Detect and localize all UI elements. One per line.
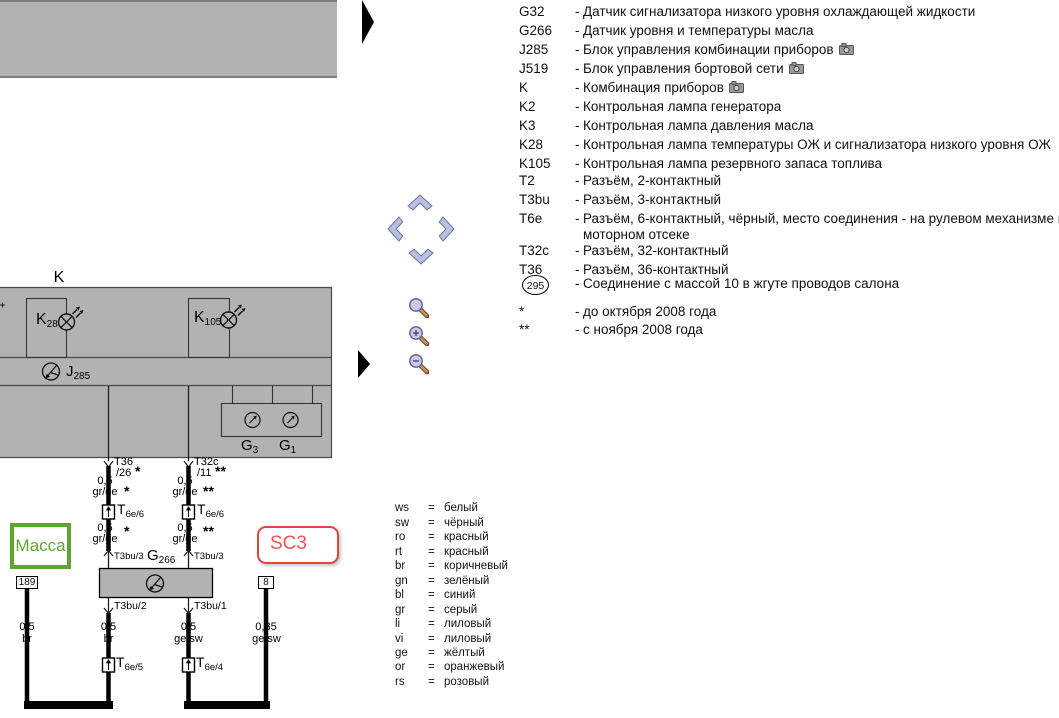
massa-link-box[interactable]: Масса <box>10 523 71 569</box>
label-g3: G3 <box>241 437 258 456</box>
label-star: * <box>124 523 129 539</box>
connector-icon-t6e4 <box>183 658 195 672</box>
label-g1: G1 <box>279 437 296 456</box>
supply-wire-color: ge/sw <box>248 633 285 645</box>
legend-code: G32 <box>519 4 545 19</box>
legend-row: K28 - Контрольная лампа температуры ОЖ и… <box>519 137 1059 155</box>
label-t3bu2: T3bu/2 <box>114 600 147 612</box>
wire-a-color: gr/ge <box>89 533 121 545</box>
pan-down-button[interactable] <box>407 246 435 266</box>
zoom-reset-icon[interactable] <box>406 296 432 322</box>
pan-up-button[interactable] <box>406 193 434 213</box>
color-code: rs <box>395 676 405 688</box>
color-code: ws <box>395 502 409 514</box>
connector-icon-t6e5 <box>103 658 115 672</box>
legend-code: K <box>519 80 528 95</box>
legend-row: K3 - Контрольная лампа давления масла <box>519 118 1059 136</box>
continuation-arrow-top[interactable] <box>362 0 374 44</box>
supply-wire-cross-section: 0,35 <box>249 621 283 633</box>
label-j285: J285 <box>66 363 90 382</box>
wire-a-color: gr/ge <box>89 486 121 498</box>
zoom-in-icon[interactable] <box>406 324 432 350</box>
ground-connection-symbol: 295 <box>522 275 549 295</box>
junction-bar-right <box>184 701 270 709</box>
zoom-out-icon[interactable] <box>406 352 432 378</box>
label-t6e5: T6e/5 <box>116 654 143 673</box>
wire-a-color: br <box>92 633 125 645</box>
wire-b-color: gr/ge <box>169 486 201 498</box>
color-code: vi <box>395 633 403 645</box>
pan-left-button[interactable] <box>386 215 406 243</box>
legend-code: ** <box>519 322 530 337</box>
ground-wire-cross-section: 0,5 <box>10 621 44 633</box>
legend-row: G32 - Датчик сигнализатора низкого уровн… <box>519 4 1059 22</box>
legend-row: K - Комбинация приборов <box>519 80 1059 98</box>
legend-row: J285 - Блок управления комбинации прибор… <box>519 42 1059 60</box>
label-t3bu3-a: T3bu/3 <box>114 551 144 562</box>
legend-code: K105 <box>519 156 551 171</box>
color-code: br <box>395 560 405 572</box>
legend-code: * <box>519 304 524 319</box>
terminal-box-189: 189 <box>16 576 38 589</box>
legend-code: G266 <box>519 23 552 38</box>
legend-row: * - до октября 2008 года <box>519 304 1059 322</box>
legend-row: 295 - Соединение с массой 10 в жгуте про… <box>519 276 1059 294</box>
label-t6e6-b: T6e/6 <box>197 501 224 520</box>
legend-row: T32c - Разъём, 32-контактный <box>519 243 1059 261</box>
legend-code: K2 <box>519 99 536 114</box>
legend-row: T2 - Разъём, 2-контактный <box>519 173 1059 191</box>
sc3-link-box[interactable]: SC3 <box>257 526 339 564</box>
label-t6e6-a: T6e/6 <box>117 501 144 520</box>
color-code: ge <box>395 647 408 659</box>
color-code: bl <box>395 589 404 601</box>
color-code: rt <box>395 546 402 558</box>
color-code: ro <box>395 531 405 543</box>
legend-code: K28 <box>519 137 543 152</box>
legend-row: K2 - Контрольная лампа генератора <box>519 99 1059 117</box>
legend-code: K3 <box>519 118 536 133</box>
pan-right-button[interactable] <box>436 215 456 243</box>
camera-icon[interactable] <box>729 81 744 93</box>
legend-code: T2 <box>519 173 535 188</box>
ground-wire-color: br <box>10 633 44 645</box>
camera-icon[interactable] <box>839 43 854 55</box>
camera-icon[interactable] <box>789 62 804 74</box>
legend-code: T6e <box>519 211 542 226</box>
color-code: gr <box>395 604 405 616</box>
wire-b-color: ge/sw <box>170 633 207 645</box>
label-star: ** <box>203 483 214 499</box>
label-t6e4: T6e/4 <box>196 654 223 673</box>
label-g266: G266 <box>147 547 175 566</box>
label-star: ** <box>215 463 226 479</box>
label-star: * <box>124 483 129 499</box>
wiring-diagram-viewer: G32 - Датчик сигнализатора низкого уровн… <box>0 0 1059 718</box>
terminal-box-8: 8 <box>258 576 274 589</box>
connector-icon-t6e6-b <box>183 505 195 519</box>
label-star: * <box>135 463 140 479</box>
legend-code: J285 <box>519 42 548 57</box>
legend-row: J519 - Блок управления бортовой сети <box>519 61 1059 79</box>
legend-row: K105 - Контрольная лампа резервного запа… <box>519 156 1059 174</box>
continuation-arrow-middle[interactable] <box>358 350 370 378</box>
wire-b-color: gr/ge <box>169 533 201 545</box>
wire-b-cross-section: 0,5 <box>172 621 205 633</box>
connector-icon-t6e6-a <box>103 505 115 519</box>
legend-row: ** - с ноября 2008 года <box>519 322 1059 340</box>
cluster-title: K <box>49 269 69 287</box>
color-code: li <box>395 618 400 630</box>
label-k105: K105 <box>194 309 221 328</box>
wire-a-cross-section: 0,5 <box>92 621 125 633</box>
legend-code: J519 <box>519 61 548 76</box>
color-code: gn <box>395 575 408 587</box>
label-star: ** <box>203 523 214 539</box>
legend-code: T32c <box>519 243 549 258</box>
legend-row: G266 - Датчик уровня и температуры масла <box>519 23 1059 41</box>
legend-code: T3bu <box>519 192 550 207</box>
junction-bar-left <box>24 701 113 709</box>
label-t3bu3-b: T3bu/3 <box>194 551 224 562</box>
label-k28: K28 <box>36 311 58 330</box>
color-code: sw <box>395 517 409 529</box>
label-t3bu1: T3bu/1 <box>194 600 227 612</box>
legend-row: T3bu - Разъём, 3-контактный <box>519 192 1059 210</box>
color-code: or <box>395 661 405 673</box>
